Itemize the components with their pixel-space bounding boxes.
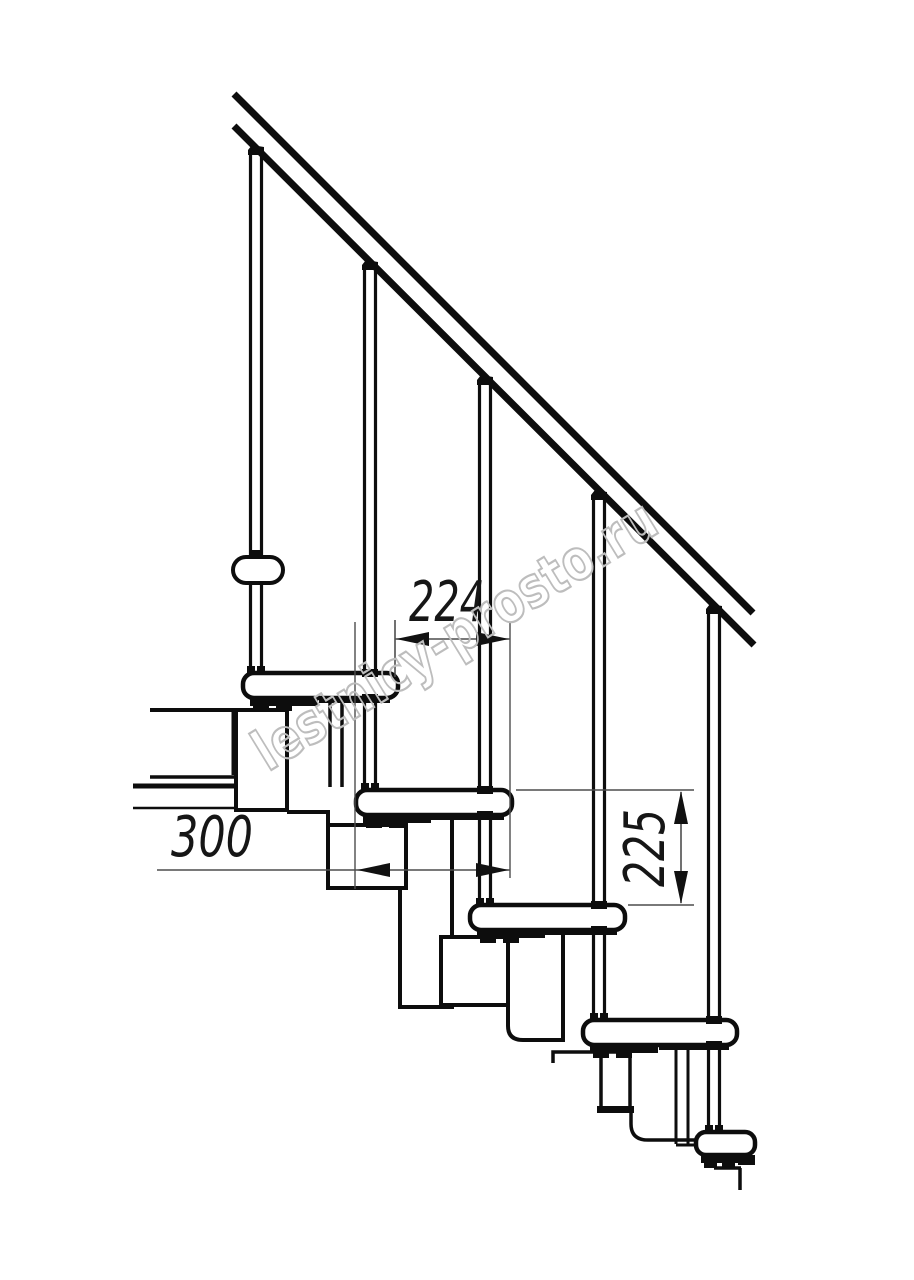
staircase-technical-drawing: 224 300 225 lestnicy-prosto.ru — [0, 0, 914, 1280]
baluster-3-collar — [477, 786, 493, 794]
baluster-1-foot — [257, 666, 265, 673]
baluster-5-collar — [706, 1016, 722, 1024]
tread-4-mount-bar — [590, 1045, 658, 1053]
tread-3-mount-lug — [503, 938, 519, 943]
tread-2-mount-lug — [389, 823, 405, 828]
baluster-2-foot — [371, 783, 379, 790]
baluster-4-collar — [591, 901, 607, 909]
baluster-3-foot — [486, 898, 494, 905]
tread-5-end-block — [738, 1155, 755, 1165]
tread-4-mount-lug — [593, 1053, 609, 1058]
module-descender-3 — [508, 933, 563, 1040]
baluster-4-collar — [591, 926, 607, 935]
tread-5 — [696, 1132, 755, 1155]
baluster-1-foot — [247, 666, 255, 673]
dim-300-label: 300 — [171, 805, 253, 870]
baluster-3-collar — [477, 811, 493, 820]
baluster-5-foot — [715, 1125, 723, 1132]
baluster-3-foot — [476, 898, 484, 905]
tread-2-underline — [432, 815, 504, 820]
baluster-5-collar — [706, 1041, 722, 1050]
baluster-2-foot — [361, 783, 369, 790]
drawing-page: 224 300 225 lestnicy-prosto.ru — [0, 0, 914, 1280]
dim-225-label: 225 — [613, 809, 678, 887]
tread-1-mount-lug — [253, 706, 269, 711]
tread-3-mount-lug — [480, 938, 496, 943]
module-coupler-1 — [328, 825, 406, 888]
tread-2-mount-lug — [366, 823, 382, 828]
baluster-4-foot — [590, 1013, 598, 1020]
tread-3-mount-bar — [477, 930, 545, 938]
baluster-4-foot — [600, 1013, 608, 1020]
fence-node-disc — [233, 557, 283, 583]
module-plate-4 — [597, 1106, 634, 1113]
tread-2-mount-bar — [363, 815, 431, 823]
tread-4-mount-lug — [616, 1053, 632, 1058]
baluster-5-foot — [705, 1125, 713, 1132]
